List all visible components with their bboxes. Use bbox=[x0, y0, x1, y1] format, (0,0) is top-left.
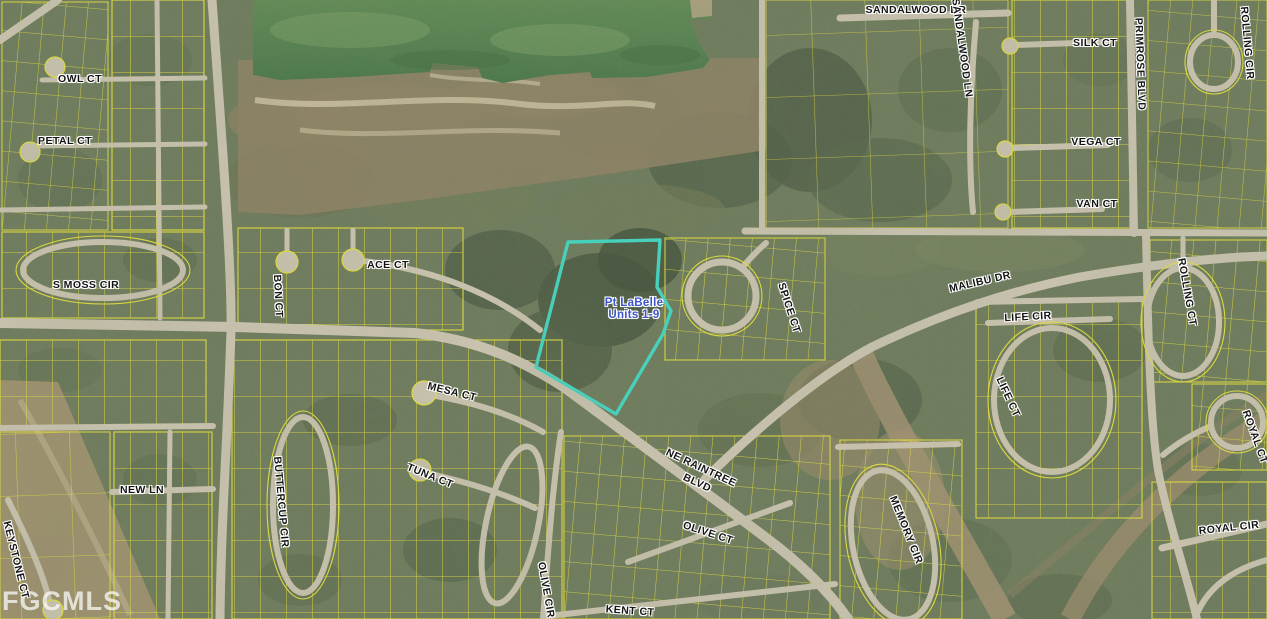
satellite-canvas bbox=[0, 0, 1267, 619]
satellite-parcel-map[interactable]: Pt LaBelle Units 1-9 FGCMLS OWL CTPETAL … bbox=[0, 0, 1267, 619]
grain-overlay bbox=[0, 0, 1267, 619]
